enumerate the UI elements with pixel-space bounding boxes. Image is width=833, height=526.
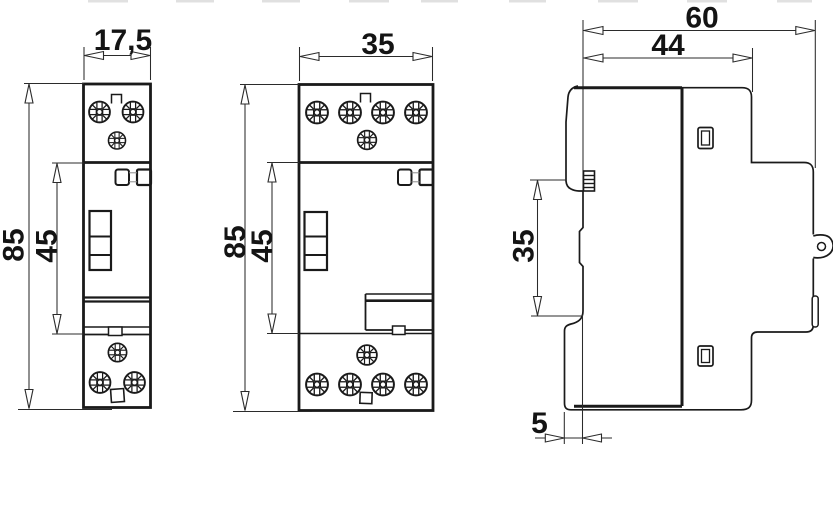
dimension-drawing: 17,5 85 45 [0,0,833,526]
screw-terminal-icon [306,102,328,124]
dim-label-depth-total: 60 [685,2,718,35]
dim-label-width-2module: 35 [361,28,394,61]
dim-label-switch-1module: 45 [31,229,64,262]
screw-terminal-icon [405,374,427,396]
terminal-marker-icon [361,94,371,103]
front-view-single-module [84,84,152,408]
dimension-drawing-page: 17,5 85 45 [0,0,833,526]
terminal-rib-block [584,171,595,191]
label-window-block [366,294,434,330]
dimensions-single-module: 17,5 85 45 [0,24,152,410]
screw-terminal-icon [123,102,144,123]
front-slope-profile [566,86,584,191]
screw-terminal-icon [306,374,328,396]
switch-lever [90,211,112,270]
side-body-outline [565,88,814,410]
screw-terminal-icon [339,374,361,396]
terminal-square-marker [111,389,125,403]
screw-terminal-icon [405,102,427,124]
dim-label-height-1module: 85 [0,228,31,261]
screw-terminal-icon [372,102,394,124]
screw-terminal-icon [358,131,377,150]
screw-terminal-icon [108,343,126,361]
screw-terminal-icon [372,374,394,396]
screw-terminal-icon [339,102,361,124]
housing-thick-lines [574,88,682,407]
screw-terminal-icon [89,102,110,123]
screw-terminal-icon [108,132,125,149]
dim-label-depth-front: 44 [651,29,685,62]
mounting-clip [116,170,152,186]
din-clip-slider [812,296,818,327]
mounting-clip [398,170,433,186]
screw-terminal-icon [124,372,145,393]
switch-lever [305,212,328,270]
side-view [565,20,833,410]
terminal-square-marker [360,392,372,403]
base-tab [393,326,406,335]
dimensions-side-view: 60 44 35 5 [508,2,816,445]
base-tab [109,327,123,336]
latch-window [698,346,713,366]
latch-window [698,128,713,149]
dim-label-switch-2module: 45 [246,229,279,262]
front-view-double-module [299,85,433,411]
screw-terminal-icon [90,372,111,393]
dim-label-width-1module: 17,5 [94,24,152,57]
dim-label-foot-offset: 5 [531,407,548,440]
din-rail-release-clip [813,235,833,258]
screw-terminal-icon [357,345,377,365]
terminal-marker-icon [112,95,122,104]
dim-label-front-height: 35 [508,229,541,262]
